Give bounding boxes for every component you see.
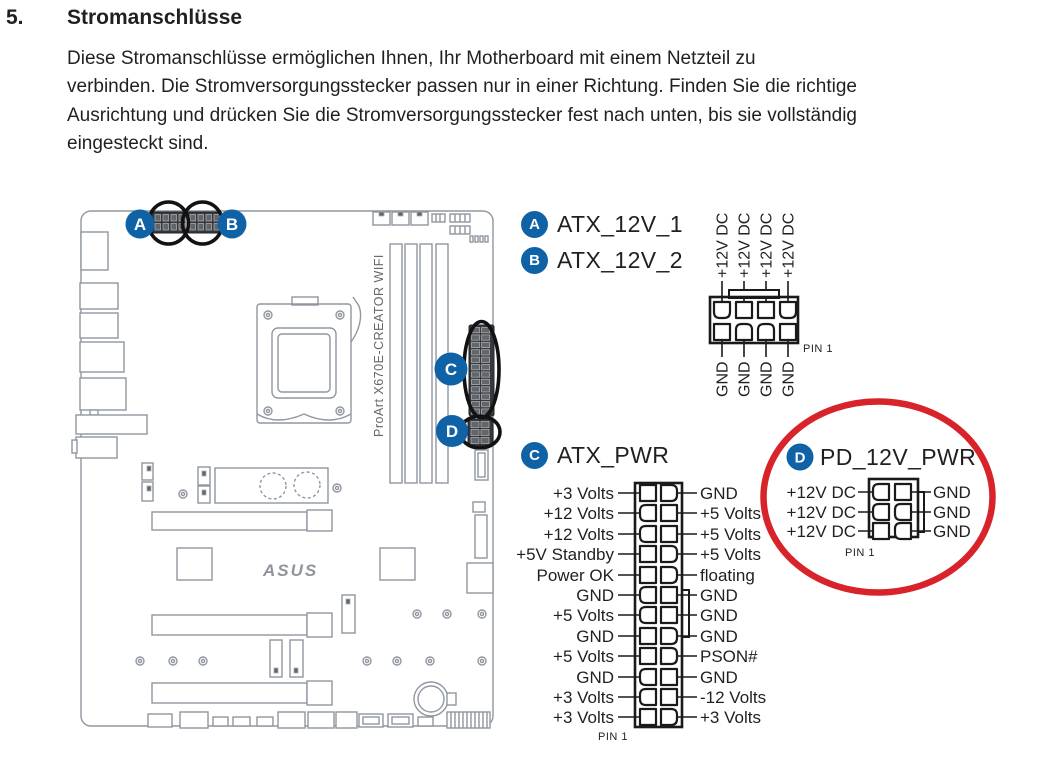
pin-label: GND bbox=[781, 361, 798, 397]
pin-label: GND bbox=[737, 361, 754, 397]
badge-b: B bbox=[521, 247, 548, 274]
pd-12v-left-labels: +12V DC +12V DC +12V DC bbox=[787, 483, 856, 541]
pin-label: +5 Volts bbox=[553, 647, 614, 666]
pin-label: +3 Volts bbox=[700, 708, 761, 727]
pin-label: +12V DC bbox=[715, 213, 732, 278]
pin-label: GND bbox=[700, 606, 738, 625]
pin-label: +12 Volts bbox=[544, 525, 614, 544]
pin-label: GND bbox=[700, 484, 738, 503]
pin-label: +3 Volts bbox=[553, 708, 614, 727]
legend-row-atx-pwr: C ATX_PWR bbox=[521, 442, 669, 469]
pin-label: GND bbox=[700, 668, 738, 687]
callout-c: C bbox=[445, 360, 457, 379]
atx-pwr-pinout-diagram: +3 Volts +12 Volts +12 Volts +5V Standby… bbox=[512, 472, 787, 750]
board-model-label: ProArt X670E-CREATOR WIFI bbox=[372, 254, 386, 437]
intro-paragraph: Diese Stromanschlüsse ermöglichen Ihnen,… bbox=[67, 45, 1007, 159]
pin-label: GND bbox=[933, 522, 971, 541]
pin-label: GND bbox=[933, 503, 971, 522]
label-atx12v-1: ATX_12V_1 bbox=[557, 211, 683, 238]
pin-label: GND bbox=[933, 483, 971, 502]
paragraph-line: Ausrichtung und drücken Sie die Stromver… bbox=[67, 102, 1007, 130]
pin-label: +12V DC bbox=[787, 483, 856, 502]
atx12v-top-labels: +12V DC +12V DC +12V DC +12V DC bbox=[715, 213, 798, 278]
pin-label: PSON# bbox=[700, 647, 758, 666]
paragraph-line: eingesteckt sind. bbox=[67, 130, 1007, 158]
pin-label: +3 Volts bbox=[553, 484, 614, 503]
paragraph-line: Diese Stromanschlüsse ermöglichen Ihnen,… bbox=[67, 45, 1007, 73]
motherboard-diagram: ProArt X670E-CREATOR WIFI bbox=[70, 200, 510, 740]
pin-label: +5V Standby bbox=[516, 545, 614, 564]
pin-label: +3 Volts bbox=[553, 688, 614, 707]
pin-label: GND bbox=[576, 668, 614, 687]
label-atx12v-2: ATX_12V_2 bbox=[557, 247, 683, 274]
pin-label: +12 Volts bbox=[544, 504, 614, 523]
callout-b: B bbox=[226, 215, 238, 234]
atx12v-pins bbox=[714, 302, 796, 340]
pin-label: GND bbox=[576, 586, 614, 605]
pin-label: +12V DC bbox=[737, 213, 754, 278]
legend-row-atx12v-1: A ATX_12V_1 bbox=[521, 211, 683, 238]
atx-pwr-pins bbox=[640, 485, 677, 725]
asus-logo: ASUS bbox=[262, 561, 318, 580]
legend-row-atx12v-2: B ATX_12V_2 bbox=[521, 247, 683, 274]
pin-label: +12V DC bbox=[759, 213, 776, 278]
pin-label: -12 Volts bbox=[700, 688, 766, 707]
atx-pwr-left-labels: +3 Volts +12 Volts +12 Volts +5V Standby… bbox=[516, 484, 614, 727]
pin1-marker: PIN 1 bbox=[598, 731, 628, 743]
pd-12v-right-labels: GND GND GND bbox=[933, 483, 971, 541]
label-pd-12v-pwr: PD_12V_PWR bbox=[820, 444, 976, 470]
badge-c: C bbox=[521, 442, 548, 469]
pin-label: GND bbox=[715, 361, 732, 397]
pin-label: GND bbox=[576, 627, 614, 646]
pin-label: +12V DC bbox=[787, 503, 856, 522]
pd-12v-pwr-section: D PD_12V_PWR +12V DC +12V DC +12V DC GND… bbox=[752, 393, 1008, 608]
pin1-marker: PIN 1 bbox=[845, 547, 875, 559]
pin-label: GND bbox=[700, 627, 738, 646]
callout-d: D bbox=[446, 422, 458, 441]
pin1-marker: PIN 1 bbox=[803, 343, 833, 355]
atx12v-pinout-diagram: +12V DC +12V DC +12V DC +12V DC GND GND … bbox=[695, 202, 845, 407]
badge-a: A bbox=[521, 211, 548, 238]
pin-label: +12V DC bbox=[781, 213, 798, 278]
page-title: Stromanschlüsse bbox=[67, 6, 242, 30]
pin-label: GND bbox=[700, 586, 738, 605]
pin-label: GND bbox=[759, 361, 776, 397]
pin-label: Power OK bbox=[537, 566, 615, 585]
label-atx-pwr: ATX_PWR bbox=[557, 442, 669, 469]
paragraph-line: verbinden. Die Stromversorgungsstecker p… bbox=[67, 73, 1007, 101]
callout-a: A bbox=[134, 215, 146, 234]
badge-d: D bbox=[795, 450, 806, 467]
pin-label: floating bbox=[700, 566, 755, 585]
section-number: 5. bbox=[6, 6, 24, 30]
pin-label: +12V DC bbox=[787, 522, 856, 541]
manual-page: 5. Stromanschlüsse Diese Stromanschlüsse… bbox=[0, 0, 1045, 772]
atx12v-bottom-labels: GND GND GND GND bbox=[715, 361, 798, 397]
pin-label: +5 Volts bbox=[553, 606, 614, 625]
pd-12v-pins bbox=[873, 484, 911, 539]
